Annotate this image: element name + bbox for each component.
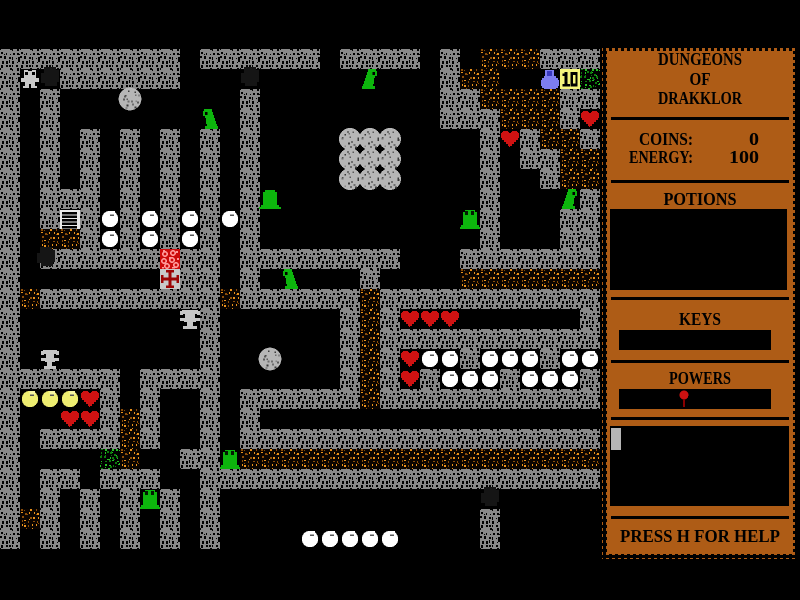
svg-text:100: 100: [729, 147, 759, 167]
svg-text:DRAKKLOR: DRAKKLOR: [658, 88, 743, 108]
svg-text:POTIONS: POTIONS: [664, 189, 737, 209]
svg-text:PRESS H FOR HELP: PRESS H FOR HELP: [620, 526, 780, 546]
svg-text:COINS:: COINS:: [639, 129, 693, 149]
svg-text:OF: OF: [690, 69, 711, 89]
svg-text:DUNGEONS: DUNGEONS: [658, 49, 742, 69]
svg-text:0: 0: [749, 129, 759, 149]
svg-text:ENERGY:: ENERGY:: [629, 147, 693, 167]
svg-text:POWERS: POWERS: [669, 368, 731, 388]
svg-text:KEYS: KEYS: [679, 309, 721, 329]
